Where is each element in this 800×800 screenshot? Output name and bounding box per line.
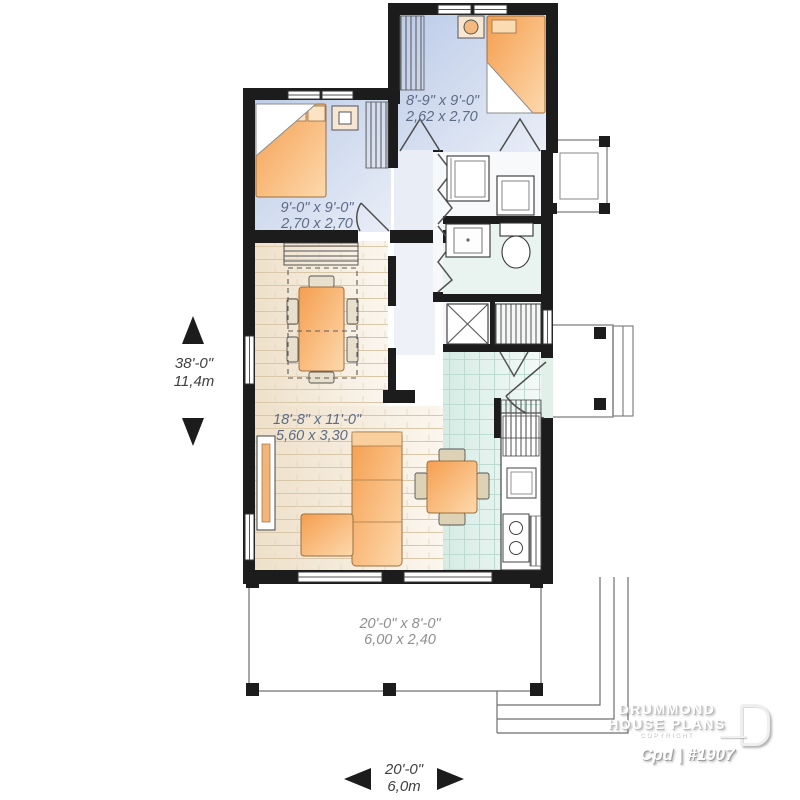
- washer: [447, 156, 489, 201]
- brand-copyright: COPYRIGHT: [598, 733, 736, 739]
- wall-shower-divider: [490, 302, 495, 346]
- width-dimension-imperial: 20'-0": [384, 761, 424, 778]
- brand-name-line2: HOUSE PLANS: [598, 717, 736, 732]
- porch-label-imperial: 20'-0" x 8'-0": [358, 616, 441, 632]
- chair: [347, 337, 358, 362]
- right-arrow-icon: [437, 768, 464, 790]
- side-stoop-steps: [613, 326, 633, 416]
- wall-dining-hall-a: [388, 256, 396, 306]
- bifold-gap: [433, 152, 443, 292]
- wall-top: [388, 3, 558, 15]
- depth-dimension-imperial: 38'-0": [175, 355, 214, 372]
- stove-burner: [510, 542, 523, 555]
- brand-name: DRUMMOND HOUSE PLANS: [598, 702, 736, 731]
- floor-plan-drawing: 8'-9" x 9'-0" 2,62 x 2,70 9'-0" x 9'-0" …: [0, 0, 800, 800]
- bedroom1-label-metric: 2,62 x 2,70: [405, 109, 478, 125]
- bedroom1-closet-shelves: [400, 16, 424, 90]
- brand-rule: [720, 736, 746, 738]
- bedroom1-label-imperial: 8'-9" x 9'-0": [406, 93, 480, 109]
- chair: [287, 299, 298, 324]
- floor-plan-page: 8'-9" x 9'-0" 2,62 x 2,70 9'-0" x 9'-0" …: [0, 0, 800, 800]
- porch-post: [530, 683, 543, 696]
- sink-drain: [466, 238, 469, 241]
- porch-post: [246, 683, 259, 696]
- lamp: [464, 20, 478, 34]
- side-stoop-post: [594, 327, 606, 339]
- nightstand-lamp: [339, 112, 351, 124]
- sideboard: [284, 243, 358, 265]
- landing-post: [599, 136, 610, 147]
- wall-bath-utility: [443, 294, 541, 302]
- living-label-imperial: 18'-8" x 11'-0": [273, 412, 362, 428]
- wall-kitchen-stub: [383, 390, 415, 403]
- chair: [309, 276, 334, 287]
- down-arrow-icon: [182, 418, 204, 446]
- chair: [287, 337, 298, 362]
- porch-label-metric: 6,00 x 2,40: [364, 632, 436, 648]
- top-landing-inner: [560, 153, 598, 199]
- living-label-metric: 5,60 x 3,30: [276, 428, 348, 444]
- brand-name-line1: DRUMMOND: [598, 702, 736, 717]
- toilet-bowl: [502, 236, 530, 268]
- bedroom2-label-imperial: 9'-0" x 9'-0": [280, 200, 354, 216]
- landing-post: [599, 203, 610, 214]
- chair: [477, 473, 489, 499]
- side-stoop-post: [594, 398, 606, 410]
- bed: [487, 16, 545, 113]
- bedroom2-label-metric: 2,70 x 2,70: [280, 216, 353, 232]
- bed: [256, 104, 326, 197]
- wall-window-post: [388, 570, 402, 584]
- sofa-back-section: [352, 432, 402, 566]
- bedroom2-closet-shelves: [366, 102, 388, 168]
- dryer: [497, 176, 534, 215]
- entry-door-gap: [541, 358, 553, 418]
- depth-dimension-metric: 11,4m: [174, 373, 215, 390]
- chair: [415, 473, 427, 499]
- pantry-shelves: [530, 516, 541, 566]
- hall-mid-floor: [394, 243, 435, 355]
- sofa-armrest: [352, 432, 402, 446]
- sofa-chaise-section: [301, 514, 353, 556]
- tv-screen: [262, 444, 270, 522]
- brand-d-logo-icon: [740, 704, 770, 746]
- toilet-tank: [500, 223, 533, 236]
- width-dimension-metric: 6,0m: [387, 778, 420, 795]
- chair: [439, 449, 465, 461]
- stove-burner: [510, 522, 523, 535]
- wall-topblock-right: [546, 3, 558, 153]
- wall-hall-closet: [494, 398, 501, 438]
- chair: [347, 299, 358, 324]
- up-arrow-icon: [182, 316, 204, 344]
- chair: [439, 513, 465, 525]
- hall-closet-shelves: [501, 400, 541, 438]
- chair: [309, 372, 334, 383]
- porch-post: [383, 683, 396, 696]
- wall-closet2: [388, 100, 398, 168]
- bed-pillow: [492, 20, 516, 33]
- dining-table: [299, 287, 344, 371]
- plan-reference: Cpd | #1907: [640, 745, 788, 765]
- kitchen-table: [427, 461, 477, 513]
- shower: [495, 304, 541, 344]
- brand-watermark: DRUMMOND HOUSE PLANS COPYRIGHT Cpd | #19…: [598, 702, 788, 765]
- left-arrow-icon: [344, 768, 371, 790]
